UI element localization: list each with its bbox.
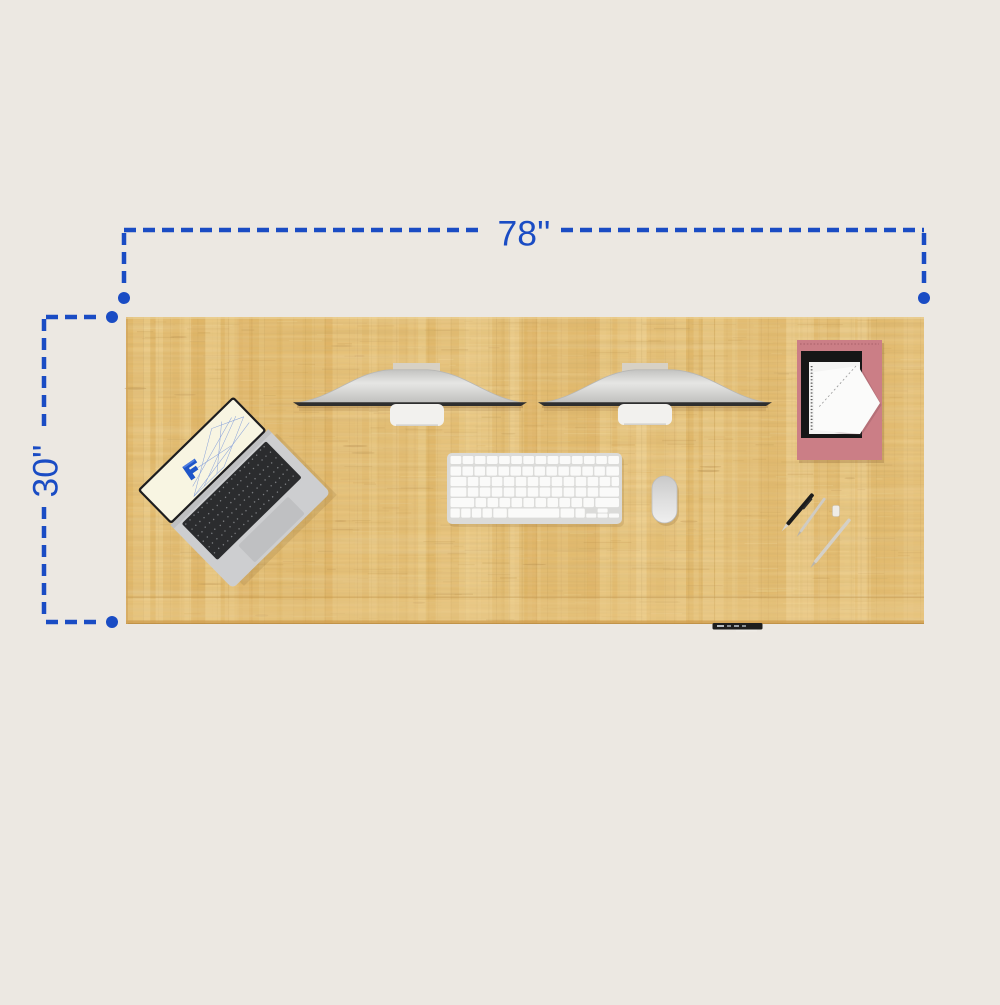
svg-text:78'': 78'' [497,214,550,254]
svg-text:30'': 30'' [26,444,66,497]
